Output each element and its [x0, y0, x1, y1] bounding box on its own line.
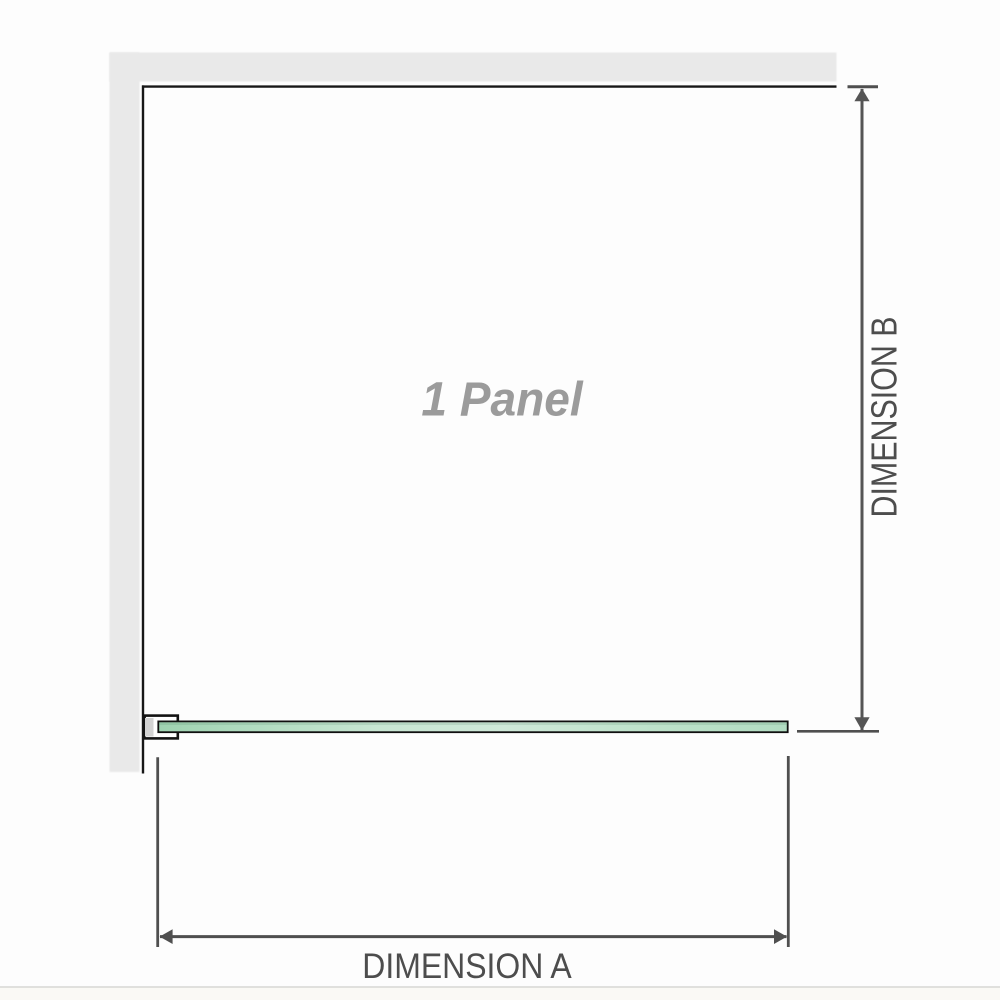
- svg-text:DIMENSION A: DIMENSION A: [362, 946, 572, 986]
- svg-text:1 Panel: 1 Panel: [421, 371, 583, 425]
- svg-text:DIMENSION B: DIMENSION B: [865, 316, 905, 517]
